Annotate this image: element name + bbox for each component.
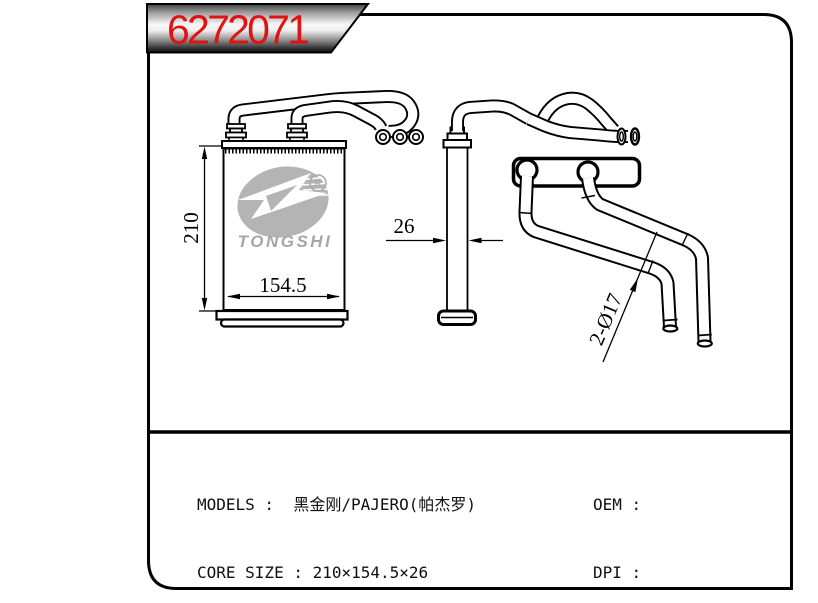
- dim-depth-label: 26: [394, 214, 415, 238]
- datasheet-page: 6272071: [0, 0, 818, 603]
- spec-right-column: OEM : DPI : NISSENS :: [593, 449, 680, 603]
- dim-width-label: 154.5: [259, 273, 306, 297]
- spec-core-size-line: CORE SIZE : 210×154.5×26: [197, 562, 476, 585]
- side-bottom-cap: [439, 311, 476, 325]
- front-pipe-ends: [376, 130, 423, 144]
- outlet-fitting: [287, 124, 307, 141]
- part-number: 6272071: [167, 7, 309, 53]
- side-core: [447, 147, 468, 312]
- spec-left-column: MODELS : 黑金刚/PAJERO(帕杰罗) CORE SIZE : 210…: [197, 449, 476, 603]
- inlet-fitting: [226, 124, 246, 141]
- registered-mark: R: [314, 179, 321, 190]
- spec-dpi-line: DPI :: [593, 562, 680, 585]
- title-box: 6272071: [147, 4, 368, 53]
- spec-oem-line: OEM :: [593, 494, 680, 517]
- spec-models-line: MODELS : 黑金刚/PAJERO(帕杰罗): [197, 494, 476, 517]
- logo-brand-text: TONGSHI: [238, 232, 333, 251]
- dim-height-label: 210: [179, 212, 203, 244]
